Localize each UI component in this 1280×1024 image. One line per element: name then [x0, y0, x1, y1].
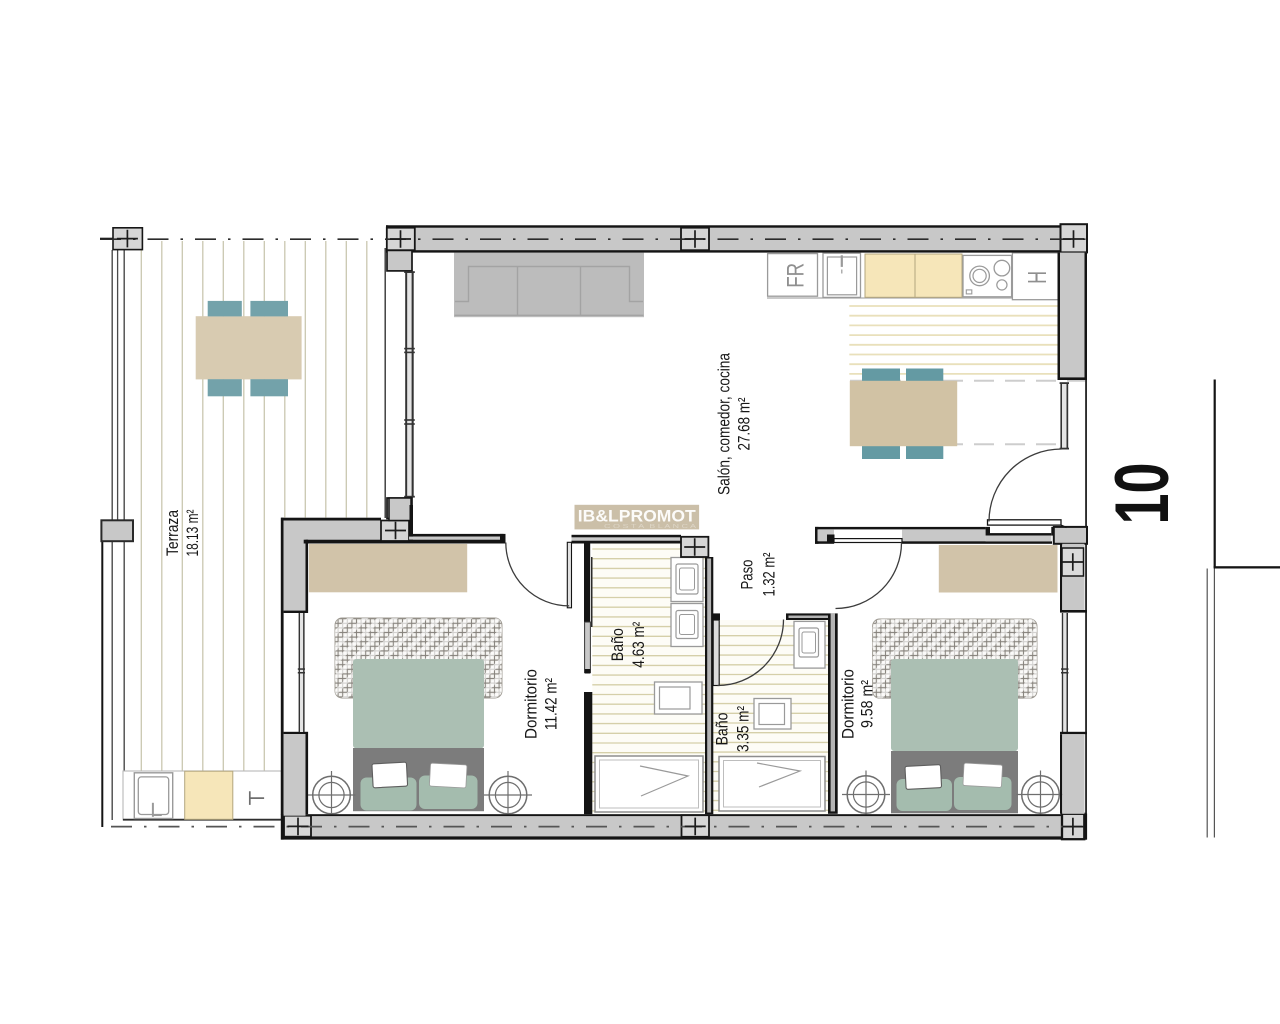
svg-text:4.63 m²: 4.63 m²	[629, 621, 648, 667]
svg-text:Dormitorio: Dormitorio	[839, 669, 858, 739]
svg-text:Dormitorio: Dormitorio	[522, 669, 541, 739]
svg-text:Baño: Baño	[713, 713, 732, 746]
svg-text:3.35 m²: 3.35 m²	[734, 706, 753, 752]
svg-text:Paso: Paso	[738, 560, 757, 590]
svg-text:Terraza: Terraza	[163, 510, 182, 556]
svg-text:Salón, comedor, cocina: Salón, comedor, cocina	[715, 353, 734, 495]
svg-text:C O S T A B L A N C A: C O S T A B L A N C A	[604, 524, 697, 530]
svg-text:11.42 m²: 11.42 m²	[542, 678, 561, 730]
svg-text:27.68 m²: 27.68 m²	[735, 397, 754, 450]
svg-text:9.58 m²: 9.58 m²	[858, 680, 877, 728]
svg-text:1.32 m²: 1.32 m²	[760, 552, 779, 596]
svg-text:10: 10	[1100, 463, 1185, 525]
svg-text:Baño: Baño	[608, 628, 627, 661]
svg-text:FR: FR	[783, 263, 810, 288]
svg-text:H: H	[1022, 271, 1052, 284]
svg-text:18.13 m²: 18.13 m²	[183, 509, 202, 556]
svg-text:IB&LPROMOT: IB&LPROMOT	[578, 508, 696, 526]
